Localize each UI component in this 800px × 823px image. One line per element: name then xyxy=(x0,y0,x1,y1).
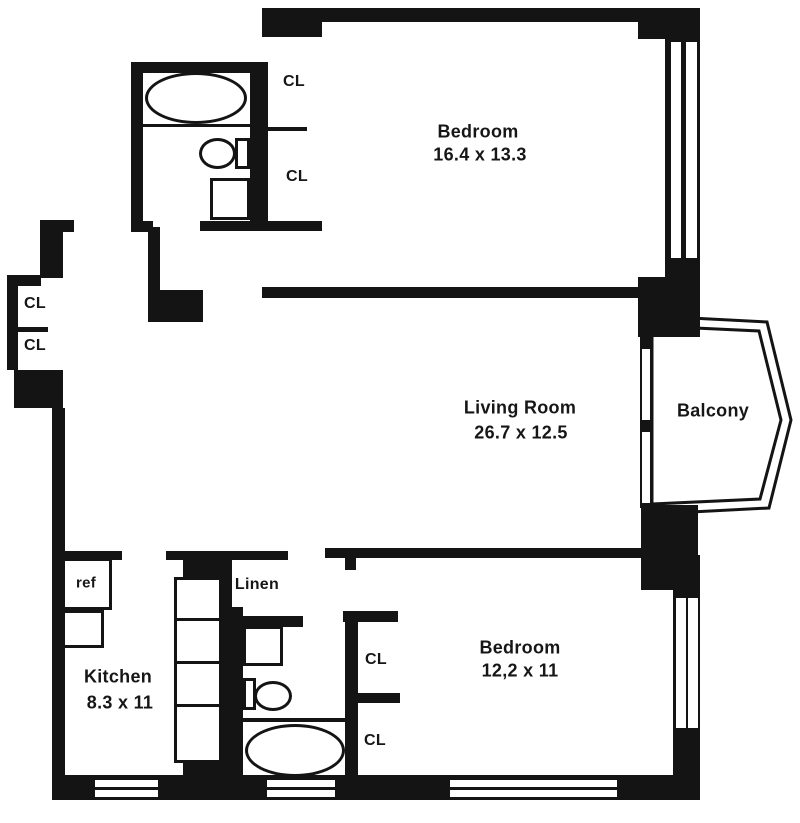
kitchen-dims: 8.3 x 11 xyxy=(87,693,153,714)
closet-label-bath-hall-lower: CL xyxy=(286,168,308,186)
bedroom-bottom-dims: 12,2 x 11 xyxy=(482,661,559,682)
wall-lr-bottom-3 xyxy=(325,548,643,558)
counter xyxy=(62,610,104,648)
wall-bedroom2-door-tick xyxy=(345,548,356,570)
wall-hall-block xyxy=(148,290,203,322)
wall-entry-block xyxy=(40,228,63,278)
living-room-dims: 26.7 x 12.5 xyxy=(474,423,567,444)
closet-label-bedroom-bottom-upper: CL xyxy=(365,651,387,669)
window xyxy=(688,598,698,728)
window xyxy=(686,42,697,258)
wall-top-step xyxy=(262,8,322,37)
pantry-shelf xyxy=(174,577,222,621)
balcony-name: Balcony xyxy=(677,401,749,422)
window-mullion xyxy=(450,787,617,790)
linen-closet-label: Linen xyxy=(235,576,279,594)
bathtub xyxy=(145,72,247,124)
pantry-shelf xyxy=(174,618,222,664)
bathtub xyxy=(245,724,345,777)
kitchen-name: Kitchen xyxy=(84,667,152,688)
wall-top xyxy=(262,8,700,22)
refrigerator-label: ref xyxy=(76,575,96,592)
closet-label-entry-upper: CL xyxy=(24,295,46,313)
living-room-name: Living Room xyxy=(464,398,576,419)
bedroom-bottom-name: Bedroom xyxy=(479,638,560,659)
wall-cl-divider xyxy=(356,693,400,703)
window-mullion xyxy=(95,787,158,790)
closet-shelf-line xyxy=(268,127,307,131)
closet-divider-line xyxy=(18,327,48,332)
closet-label-bedroom-bottom-lower: CL xyxy=(364,732,386,750)
pantry-shelf xyxy=(174,661,222,707)
floor-plan: Bedroom 16.4 x 13.3 Living Room 26.7 x 1… xyxy=(0,0,800,823)
sink xyxy=(210,178,250,220)
toilet-tank xyxy=(235,138,250,169)
pantry-shelf xyxy=(174,704,222,763)
bedroom-top-dims: 16.4 x 13.3 xyxy=(433,145,526,166)
wall-hall-vertical xyxy=(148,227,160,290)
window-mullion xyxy=(267,787,335,790)
bathtub-edge-line xyxy=(242,718,346,722)
toilet-bowl xyxy=(254,681,292,711)
toilet-bowl xyxy=(199,138,236,169)
window xyxy=(671,42,681,258)
closet-label-bath-hall-upper: CL xyxy=(283,73,305,91)
wall-left-block xyxy=(14,370,63,408)
window xyxy=(676,598,686,728)
wall-bath2-left xyxy=(229,607,243,778)
wall-far-left xyxy=(7,275,18,370)
wall-bath-bottom xyxy=(200,221,322,231)
bedroom-top-name: Bedroom xyxy=(437,122,518,143)
closet-label-entry-lower: CL xyxy=(24,337,46,355)
balcony-door-glass xyxy=(642,349,650,420)
bathtub-edge-line xyxy=(143,124,250,127)
wall-bath-left xyxy=(131,62,143,232)
wall-bedroom-top-bottom xyxy=(262,287,638,298)
wall-bath-right xyxy=(250,62,268,224)
sink xyxy=(243,626,283,666)
balcony-door-glass xyxy=(642,432,650,503)
